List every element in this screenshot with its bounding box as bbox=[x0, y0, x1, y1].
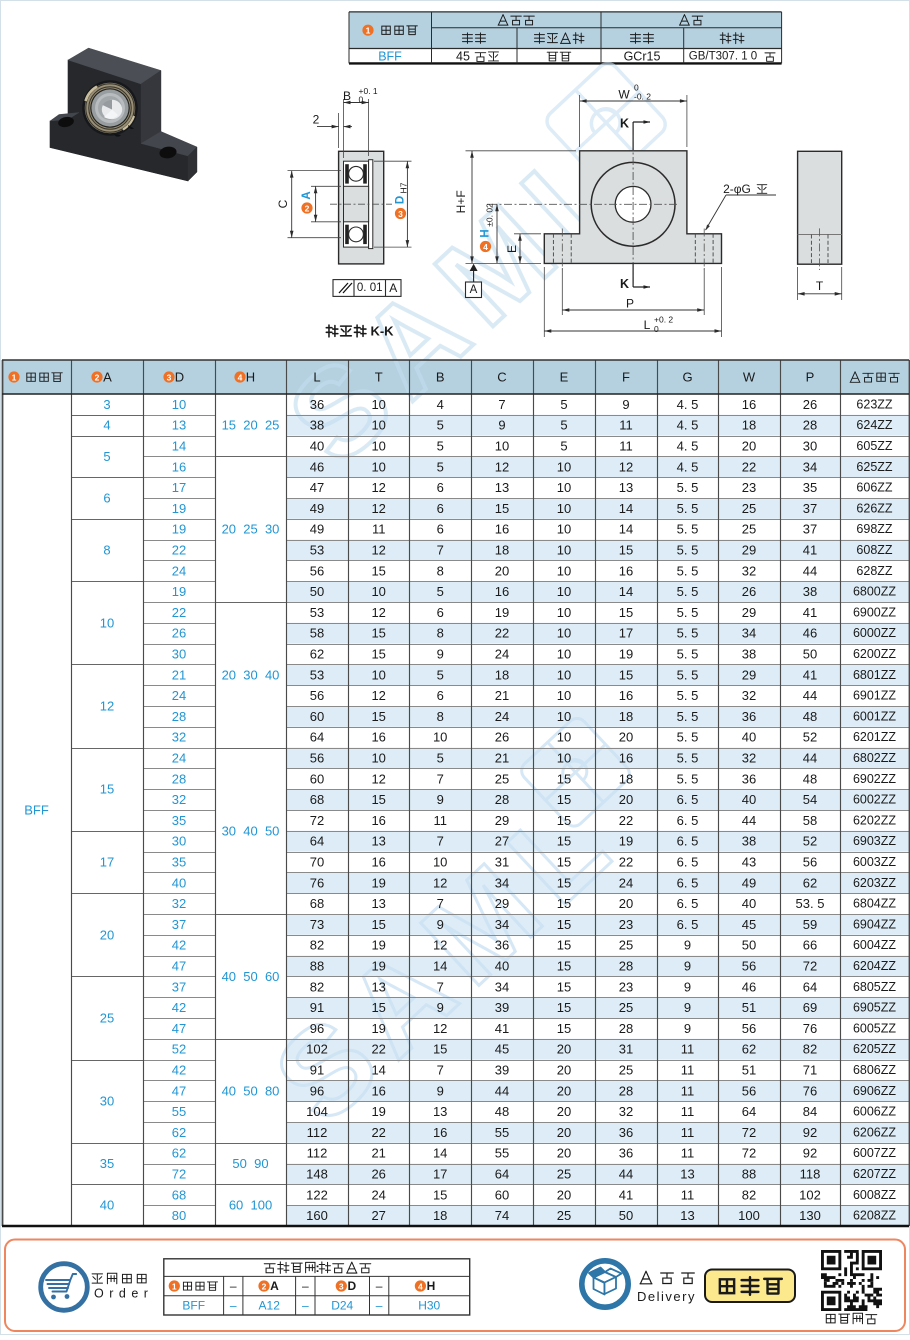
svg-text:15: 15 bbox=[557, 771, 571, 786]
svg-text:6: 6 bbox=[437, 688, 444, 703]
svg-text:3: 3 bbox=[398, 209, 403, 219]
svg-text:38: 38 bbox=[310, 418, 324, 433]
svg-text:18: 18 bbox=[495, 667, 509, 682]
svg-text:36: 36 bbox=[742, 771, 756, 786]
svg-text:91: 91 bbox=[310, 1000, 324, 1015]
svg-text:15 20 25: 15 20 25 bbox=[222, 418, 280, 433]
svg-text:92: 92 bbox=[803, 1146, 817, 1161]
svg-text:4: 4 bbox=[437, 397, 444, 412]
svg-text:6903ZZ: 6903ZZ bbox=[853, 834, 896, 848]
svg-text:41: 41 bbox=[803, 667, 817, 682]
svg-text:71: 71 bbox=[803, 1063, 817, 1078]
svg-text:34: 34 bbox=[742, 626, 756, 641]
svg-text:2: 2 bbox=[305, 203, 310, 213]
svg-text:17: 17 bbox=[100, 855, 114, 870]
svg-text:25: 25 bbox=[619, 1063, 633, 1078]
svg-text:39: 39 bbox=[495, 1000, 509, 1015]
svg-text:A: A bbox=[270, 1279, 279, 1293]
svg-text:8: 8 bbox=[437, 626, 444, 641]
svg-text:±0. 02: ±0. 02 bbox=[485, 203, 495, 227]
svg-text:5: 5 bbox=[560, 418, 567, 433]
svg-text:5. 5: 5. 5 bbox=[677, 667, 699, 682]
svg-text:3: 3 bbox=[339, 1281, 344, 1291]
svg-text:56: 56 bbox=[310, 563, 324, 578]
svg-text:17: 17 bbox=[619, 626, 633, 641]
svg-text:55: 55 bbox=[495, 1125, 509, 1140]
svg-text:96: 96 bbox=[310, 1083, 324, 1098]
svg-text:6800ZZ: 6800ZZ bbox=[853, 585, 896, 599]
svg-text:16: 16 bbox=[495, 584, 509, 599]
svg-text:69: 69 bbox=[803, 1000, 817, 1015]
svg-text:102: 102 bbox=[799, 1187, 821, 1202]
svg-text:70: 70 bbox=[310, 855, 324, 870]
svg-text:20 30 40: 20 30 40 bbox=[222, 667, 280, 682]
svg-text:40 50 60: 40 50 60 bbox=[222, 969, 280, 984]
svg-text:10: 10 bbox=[371, 439, 385, 454]
svg-text:3: 3 bbox=[167, 372, 172, 382]
svg-text:625ZZ: 625ZZ bbox=[856, 460, 892, 474]
svg-text:9: 9 bbox=[684, 959, 691, 974]
svg-text:6201ZZ: 6201ZZ bbox=[853, 730, 896, 744]
svg-text:2-φG: 2-φG bbox=[723, 182, 751, 196]
svg-text:30: 30 bbox=[172, 834, 186, 849]
svg-text:21: 21 bbox=[172, 667, 186, 682]
svg-text:5. 5: 5. 5 bbox=[677, 480, 699, 495]
svg-text:6206ZZ: 6206ZZ bbox=[853, 1125, 896, 1139]
svg-text:82: 82 bbox=[310, 938, 324, 953]
svg-text:10: 10 bbox=[433, 855, 447, 870]
svg-text:6003ZZ: 6003ZZ bbox=[853, 855, 896, 869]
svg-text:66: 66 bbox=[803, 938, 817, 953]
svg-text:29: 29 bbox=[495, 813, 509, 828]
svg-text:T: T bbox=[816, 279, 824, 293]
svg-text:16: 16 bbox=[619, 751, 633, 766]
svg-text:72: 72 bbox=[803, 959, 817, 974]
svg-text:16: 16 bbox=[371, 813, 385, 828]
svg-text:45: 45 bbox=[456, 50, 470, 64]
svg-text:A: A bbox=[103, 370, 112, 385]
svg-text:6. 5: 6. 5 bbox=[677, 917, 699, 932]
svg-text:11: 11 bbox=[681, 1083, 695, 1098]
svg-text:42: 42 bbox=[172, 1063, 186, 1078]
svg-text:24: 24 bbox=[172, 563, 186, 578]
svg-text:14: 14 bbox=[433, 1146, 447, 1161]
svg-text:53: 53 bbox=[310, 543, 324, 558]
svg-text:D: D bbox=[175, 370, 184, 385]
svg-text:6. 5: 6. 5 bbox=[677, 896, 699, 911]
svg-text:K: K bbox=[620, 277, 629, 291]
svg-text:628ZZ: 628ZZ bbox=[856, 564, 892, 578]
svg-text:38: 38 bbox=[803, 584, 817, 599]
svg-text:14: 14 bbox=[371, 1063, 385, 1078]
svg-text:24: 24 bbox=[172, 751, 186, 766]
svg-text:5: 5 bbox=[560, 397, 567, 412]
svg-text:34: 34 bbox=[803, 459, 817, 474]
svg-text:82: 82 bbox=[742, 1187, 756, 1202]
svg-text:10: 10 bbox=[371, 667, 385, 682]
svg-text:9: 9 bbox=[684, 1021, 691, 1036]
svg-text:1: 1 bbox=[172, 1281, 177, 1291]
svg-text:12: 12 bbox=[371, 605, 385, 620]
svg-text:32: 32 bbox=[172, 896, 186, 911]
svg-text:6005ZZ: 6005ZZ bbox=[853, 1021, 896, 1035]
svg-text:12: 12 bbox=[495, 459, 509, 474]
svg-text:11: 11 bbox=[619, 418, 633, 433]
svg-text:D: D bbox=[395, 196, 407, 204]
svg-text:25: 25 bbox=[619, 938, 633, 953]
svg-text:68: 68 bbox=[172, 1187, 186, 1202]
svg-text:6. 5: 6. 5 bbox=[677, 834, 699, 849]
svg-text:24: 24 bbox=[172, 688, 186, 703]
svg-text:12: 12 bbox=[619, 459, 633, 474]
svg-text:9: 9 bbox=[622, 397, 629, 412]
svg-text:11: 11 bbox=[681, 1146, 695, 1161]
svg-text:19: 19 bbox=[371, 1104, 385, 1119]
svg-text:10: 10 bbox=[433, 730, 447, 745]
svg-text:9: 9 bbox=[437, 647, 444, 662]
svg-text:74: 74 bbox=[495, 1208, 509, 1223]
svg-text:-0. 2: -0. 2 bbox=[634, 92, 651, 102]
svg-text:41: 41 bbox=[619, 1187, 633, 1202]
svg-text:39: 39 bbox=[495, 1063, 509, 1078]
svg-text:6906ZZ: 6906ZZ bbox=[853, 1084, 896, 1098]
svg-text:34: 34 bbox=[495, 875, 509, 890]
svg-text:15: 15 bbox=[371, 563, 385, 578]
svg-text:14: 14 bbox=[619, 501, 633, 516]
svg-text:6805ZZ: 6805ZZ bbox=[853, 980, 896, 994]
svg-text:10: 10 bbox=[557, 543, 571, 558]
svg-text:4. 5: 4. 5 bbox=[677, 459, 699, 474]
svg-text:40: 40 bbox=[742, 896, 756, 911]
svg-text:9: 9 bbox=[684, 979, 691, 994]
svg-text:10: 10 bbox=[371, 397, 385, 412]
svg-text:C: C bbox=[497, 370, 506, 385]
svg-text:32: 32 bbox=[172, 792, 186, 807]
svg-text:B: B bbox=[343, 89, 351, 103]
svg-text:12: 12 bbox=[371, 771, 385, 786]
svg-text:6806ZZ: 6806ZZ bbox=[853, 1063, 896, 1077]
svg-text:9: 9 bbox=[437, 917, 444, 932]
svg-text:11: 11 bbox=[619, 439, 633, 454]
svg-text:6002ZZ: 6002ZZ bbox=[853, 793, 896, 807]
svg-text:60: 60 bbox=[310, 709, 324, 724]
svg-text:46: 46 bbox=[803, 626, 817, 641]
svg-text:6007ZZ: 6007ZZ bbox=[853, 1146, 896, 1160]
svg-text:0: 0 bbox=[359, 95, 364, 105]
svg-text:K-K: K-K bbox=[370, 324, 394, 339]
svg-text:28: 28 bbox=[803, 418, 817, 433]
svg-text:4: 4 bbox=[483, 242, 488, 252]
svg-text:16: 16 bbox=[742, 397, 756, 412]
svg-text:29: 29 bbox=[742, 543, 756, 558]
svg-text:H: H bbox=[480, 229, 492, 237]
svg-text:22: 22 bbox=[371, 1042, 385, 1057]
svg-text:51: 51 bbox=[742, 1063, 756, 1078]
svg-text:35: 35 bbox=[172, 855, 186, 870]
svg-text:112: 112 bbox=[307, 1125, 328, 1140]
svg-text:15: 15 bbox=[371, 1000, 385, 1015]
svg-text:7: 7 bbox=[437, 834, 444, 849]
svg-text:54: 54 bbox=[803, 792, 817, 807]
svg-text:15: 15 bbox=[557, 813, 571, 828]
svg-text:6001ZZ: 6001ZZ bbox=[853, 709, 896, 723]
svg-text:28: 28 bbox=[172, 771, 186, 786]
svg-text:+0. 2: +0. 2 bbox=[654, 315, 673, 325]
svg-text:68: 68 bbox=[310, 792, 324, 807]
svg-text:40: 40 bbox=[495, 959, 509, 974]
svg-text:6. 5: 6. 5 bbox=[677, 875, 699, 890]
svg-text:BFF: BFF bbox=[182, 1298, 205, 1312]
svg-text:21: 21 bbox=[495, 688, 509, 703]
svg-text:H30: H30 bbox=[418, 1298, 440, 1312]
svg-text:20: 20 bbox=[557, 1146, 571, 1161]
svg-text:11: 11 bbox=[433, 813, 447, 828]
svg-text:5: 5 bbox=[437, 418, 444, 433]
svg-text:73: 73 bbox=[310, 917, 324, 932]
svg-text:9: 9 bbox=[498, 418, 505, 433]
svg-text:9: 9 bbox=[684, 938, 691, 953]
svg-text:76: 76 bbox=[310, 875, 324, 890]
svg-text:64: 64 bbox=[742, 1104, 756, 1119]
svg-text:20: 20 bbox=[100, 927, 114, 942]
svg-text:15: 15 bbox=[557, 896, 571, 911]
svg-text:41: 41 bbox=[803, 605, 817, 620]
svg-text:5. 5: 5. 5 bbox=[677, 584, 699, 599]
svg-text:15: 15 bbox=[371, 647, 385, 662]
svg-text:15: 15 bbox=[371, 626, 385, 641]
svg-text:22: 22 bbox=[371, 1125, 385, 1140]
svg-text:H: H bbox=[246, 370, 255, 385]
svg-text:32: 32 bbox=[742, 563, 756, 578]
svg-text:31: 31 bbox=[619, 1042, 633, 1057]
svg-text:15: 15 bbox=[557, 979, 571, 994]
svg-text:51: 51 bbox=[742, 1000, 756, 1015]
svg-text:30: 30 bbox=[172, 647, 186, 662]
svg-text:21: 21 bbox=[495, 751, 509, 766]
svg-text:B: B bbox=[436, 370, 445, 385]
svg-text:88: 88 bbox=[310, 959, 324, 974]
svg-text:42: 42 bbox=[172, 938, 186, 953]
svg-text:10: 10 bbox=[100, 615, 114, 630]
svg-text:25: 25 bbox=[557, 1208, 571, 1223]
svg-text:6801ZZ: 6801ZZ bbox=[853, 668, 896, 682]
svg-text:10: 10 bbox=[172, 397, 186, 412]
svg-text:19: 19 bbox=[495, 605, 509, 620]
svg-text:72: 72 bbox=[742, 1146, 756, 1161]
svg-text:698ZZ: 698ZZ bbox=[856, 522, 892, 536]
svg-text:D: D bbox=[347, 1279, 356, 1293]
svg-text:50 90: 50 90 bbox=[232, 1156, 268, 1171]
svg-text:15: 15 bbox=[557, 1021, 571, 1036]
svg-text:15: 15 bbox=[557, 834, 571, 849]
svg-text:16: 16 bbox=[172, 459, 186, 474]
svg-text:5. 5: 5. 5 bbox=[677, 771, 699, 786]
svg-text:2: 2 bbox=[95, 372, 100, 382]
svg-text:5. 5: 5. 5 bbox=[677, 522, 699, 537]
svg-text:16: 16 bbox=[495, 522, 509, 537]
svg-text:82: 82 bbox=[310, 979, 324, 994]
svg-text:60 100: 60 100 bbox=[229, 1198, 272, 1213]
svg-text:44: 44 bbox=[495, 1083, 509, 1098]
svg-text:122: 122 bbox=[306, 1187, 328, 1202]
svg-text:44: 44 bbox=[803, 688, 817, 703]
svg-text:10: 10 bbox=[371, 751, 385, 766]
svg-text:G: G bbox=[682, 370, 692, 385]
svg-text:23: 23 bbox=[619, 979, 633, 994]
svg-text:41: 41 bbox=[803, 543, 817, 558]
svg-text:16: 16 bbox=[619, 563, 633, 578]
svg-text:64: 64 bbox=[310, 834, 324, 849]
svg-text:6900ZZ: 6900ZZ bbox=[853, 605, 896, 619]
svg-text:37: 37 bbox=[172, 979, 186, 994]
svg-text:16: 16 bbox=[371, 730, 385, 745]
svg-text:55: 55 bbox=[495, 1146, 509, 1161]
svg-text:46: 46 bbox=[310, 459, 324, 474]
svg-text:34: 34 bbox=[495, 979, 509, 994]
svg-text:92: 92 bbox=[803, 1125, 817, 1140]
svg-text:5. 5: 5. 5 bbox=[677, 563, 699, 578]
svg-text:68: 68 bbox=[310, 896, 324, 911]
svg-text:64: 64 bbox=[803, 979, 817, 994]
svg-text:20: 20 bbox=[619, 730, 633, 745]
svg-text:62: 62 bbox=[310, 647, 324, 662]
svg-text:BFF: BFF bbox=[24, 803, 49, 818]
svg-text:47: 47 bbox=[172, 959, 186, 974]
svg-text:624ZZ: 624ZZ bbox=[856, 418, 892, 432]
svg-text:15: 15 bbox=[557, 875, 571, 890]
svg-text:32: 32 bbox=[172, 730, 186, 745]
svg-text:7: 7 bbox=[437, 979, 444, 994]
svg-text:60: 60 bbox=[310, 771, 324, 786]
svg-text:22: 22 bbox=[172, 543, 186, 558]
svg-text:7: 7 bbox=[437, 896, 444, 911]
svg-text:15: 15 bbox=[619, 543, 633, 558]
svg-text:–: – bbox=[376, 1279, 383, 1293]
svg-text:45: 45 bbox=[742, 917, 756, 932]
svg-text:22: 22 bbox=[495, 626, 509, 641]
svg-text:6200ZZ: 6200ZZ bbox=[853, 647, 896, 661]
svg-text:40: 40 bbox=[310, 439, 324, 454]
svg-text:58: 58 bbox=[310, 626, 324, 641]
svg-text:0: 0 bbox=[654, 324, 659, 334]
svg-text:55: 55 bbox=[172, 1104, 186, 1119]
svg-text:14: 14 bbox=[172, 439, 186, 454]
svg-text:6. 5: 6. 5 bbox=[677, 813, 699, 828]
svg-text:6203ZZ: 6203ZZ bbox=[853, 876, 896, 890]
svg-text:T: T bbox=[375, 370, 383, 385]
svg-text:22: 22 bbox=[742, 459, 756, 474]
svg-text:22: 22 bbox=[172, 605, 186, 620]
svg-text:19: 19 bbox=[172, 522, 186, 537]
svg-text:72: 72 bbox=[172, 1167, 186, 1182]
svg-text:25: 25 bbox=[619, 1000, 633, 1015]
svg-text:62: 62 bbox=[172, 1125, 186, 1140]
svg-text:15: 15 bbox=[619, 605, 633, 620]
svg-text:25: 25 bbox=[742, 501, 756, 516]
svg-text:6000ZZ: 6000ZZ bbox=[853, 626, 896, 640]
svg-text:28: 28 bbox=[619, 1083, 633, 1098]
svg-text:53: 53 bbox=[310, 667, 324, 682]
svg-text:4. 5: 4. 5 bbox=[677, 439, 699, 454]
svg-text:49: 49 bbox=[742, 875, 756, 890]
svg-text:19: 19 bbox=[619, 647, 633, 662]
svg-text:25: 25 bbox=[742, 522, 756, 537]
svg-text:19: 19 bbox=[619, 834, 633, 849]
svg-text:10: 10 bbox=[557, 647, 571, 662]
svg-text:6205ZZ: 6205ZZ bbox=[853, 1042, 896, 1056]
svg-text:15: 15 bbox=[433, 1187, 447, 1202]
svg-text:A: A bbox=[301, 191, 313, 199]
svg-text:6802ZZ: 6802ZZ bbox=[853, 751, 896, 765]
svg-text:47: 47 bbox=[310, 480, 324, 495]
svg-text:9: 9 bbox=[684, 1000, 691, 1015]
svg-text:20: 20 bbox=[557, 1042, 571, 1057]
svg-text:36: 36 bbox=[310, 397, 324, 412]
svg-text:36: 36 bbox=[619, 1125, 633, 1140]
svg-text:47: 47 bbox=[172, 1021, 186, 1036]
svg-text:5. 5: 5. 5 bbox=[677, 751, 699, 766]
svg-text:4. 5: 4. 5 bbox=[677, 397, 699, 412]
svg-text:25: 25 bbox=[557, 1167, 571, 1182]
svg-text:64: 64 bbox=[495, 1167, 509, 1182]
svg-text:56: 56 bbox=[742, 1083, 756, 1098]
svg-text:22: 22 bbox=[619, 813, 633, 828]
svg-text:76: 76 bbox=[803, 1083, 817, 1098]
svg-text:16: 16 bbox=[371, 1083, 385, 1098]
svg-text:15: 15 bbox=[371, 917, 385, 932]
svg-text:15: 15 bbox=[557, 938, 571, 953]
svg-text:9: 9 bbox=[437, 1000, 444, 1015]
svg-text:19: 19 bbox=[371, 938, 385, 953]
svg-text:50: 50 bbox=[803, 647, 817, 662]
svg-text:40: 40 bbox=[172, 875, 186, 890]
svg-text:19: 19 bbox=[172, 501, 186, 516]
svg-text:24: 24 bbox=[495, 709, 509, 724]
svg-text:12: 12 bbox=[433, 938, 447, 953]
svg-text:42: 42 bbox=[172, 1000, 186, 1015]
svg-text:56: 56 bbox=[803, 855, 817, 870]
svg-text:K: K bbox=[620, 117, 629, 131]
svg-text:56: 56 bbox=[310, 751, 324, 766]
svg-text:17: 17 bbox=[172, 480, 186, 495]
svg-text:12: 12 bbox=[100, 699, 114, 714]
svg-text:91: 91 bbox=[310, 1063, 324, 1078]
svg-text:Delivery: Delivery bbox=[637, 1289, 696, 1304]
svg-text:10: 10 bbox=[557, 688, 571, 703]
svg-text:44: 44 bbox=[803, 563, 817, 578]
svg-text:15: 15 bbox=[557, 1000, 571, 1015]
svg-text:6902ZZ: 6902ZZ bbox=[853, 772, 896, 786]
svg-text:10: 10 bbox=[371, 459, 385, 474]
svg-text:50: 50 bbox=[310, 584, 324, 599]
svg-text:19: 19 bbox=[371, 1021, 385, 1036]
svg-text:H7: H7 bbox=[399, 182, 409, 193]
svg-text:C: C bbox=[276, 199, 290, 208]
svg-text:A: A bbox=[389, 281, 397, 295]
svg-text:48: 48 bbox=[803, 771, 817, 786]
svg-text:6004ZZ: 6004ZZ bbox=[853, 938, 896, 952]
svg-text:82: 82 bbox=[803, 1042, 817, 1057]
svg-text:13: 13 bbox=[495, 480, 509, 495]
svg-text:32: 32 bbox=[619, 1104, 633, 1119]
svg-text:6207ZZ: 6207ZZ bbox=[853, 1167, 896, 1181]
svg-text:29: 29 bbox=[742, 605, 756, 620]
svg-text:38: 38 bbox=[742, 834, 756, 849]
svg-text:48: 48 bbox=[495, 1104, 509, 1119]
svg-text:5: 5 bbox=[437, 751, 444, 766]
svg-text:22: 22 bbox=[619, 855, 633, 870]
svg-text:10: 10 bbox=[557, 730, 571, 745]
